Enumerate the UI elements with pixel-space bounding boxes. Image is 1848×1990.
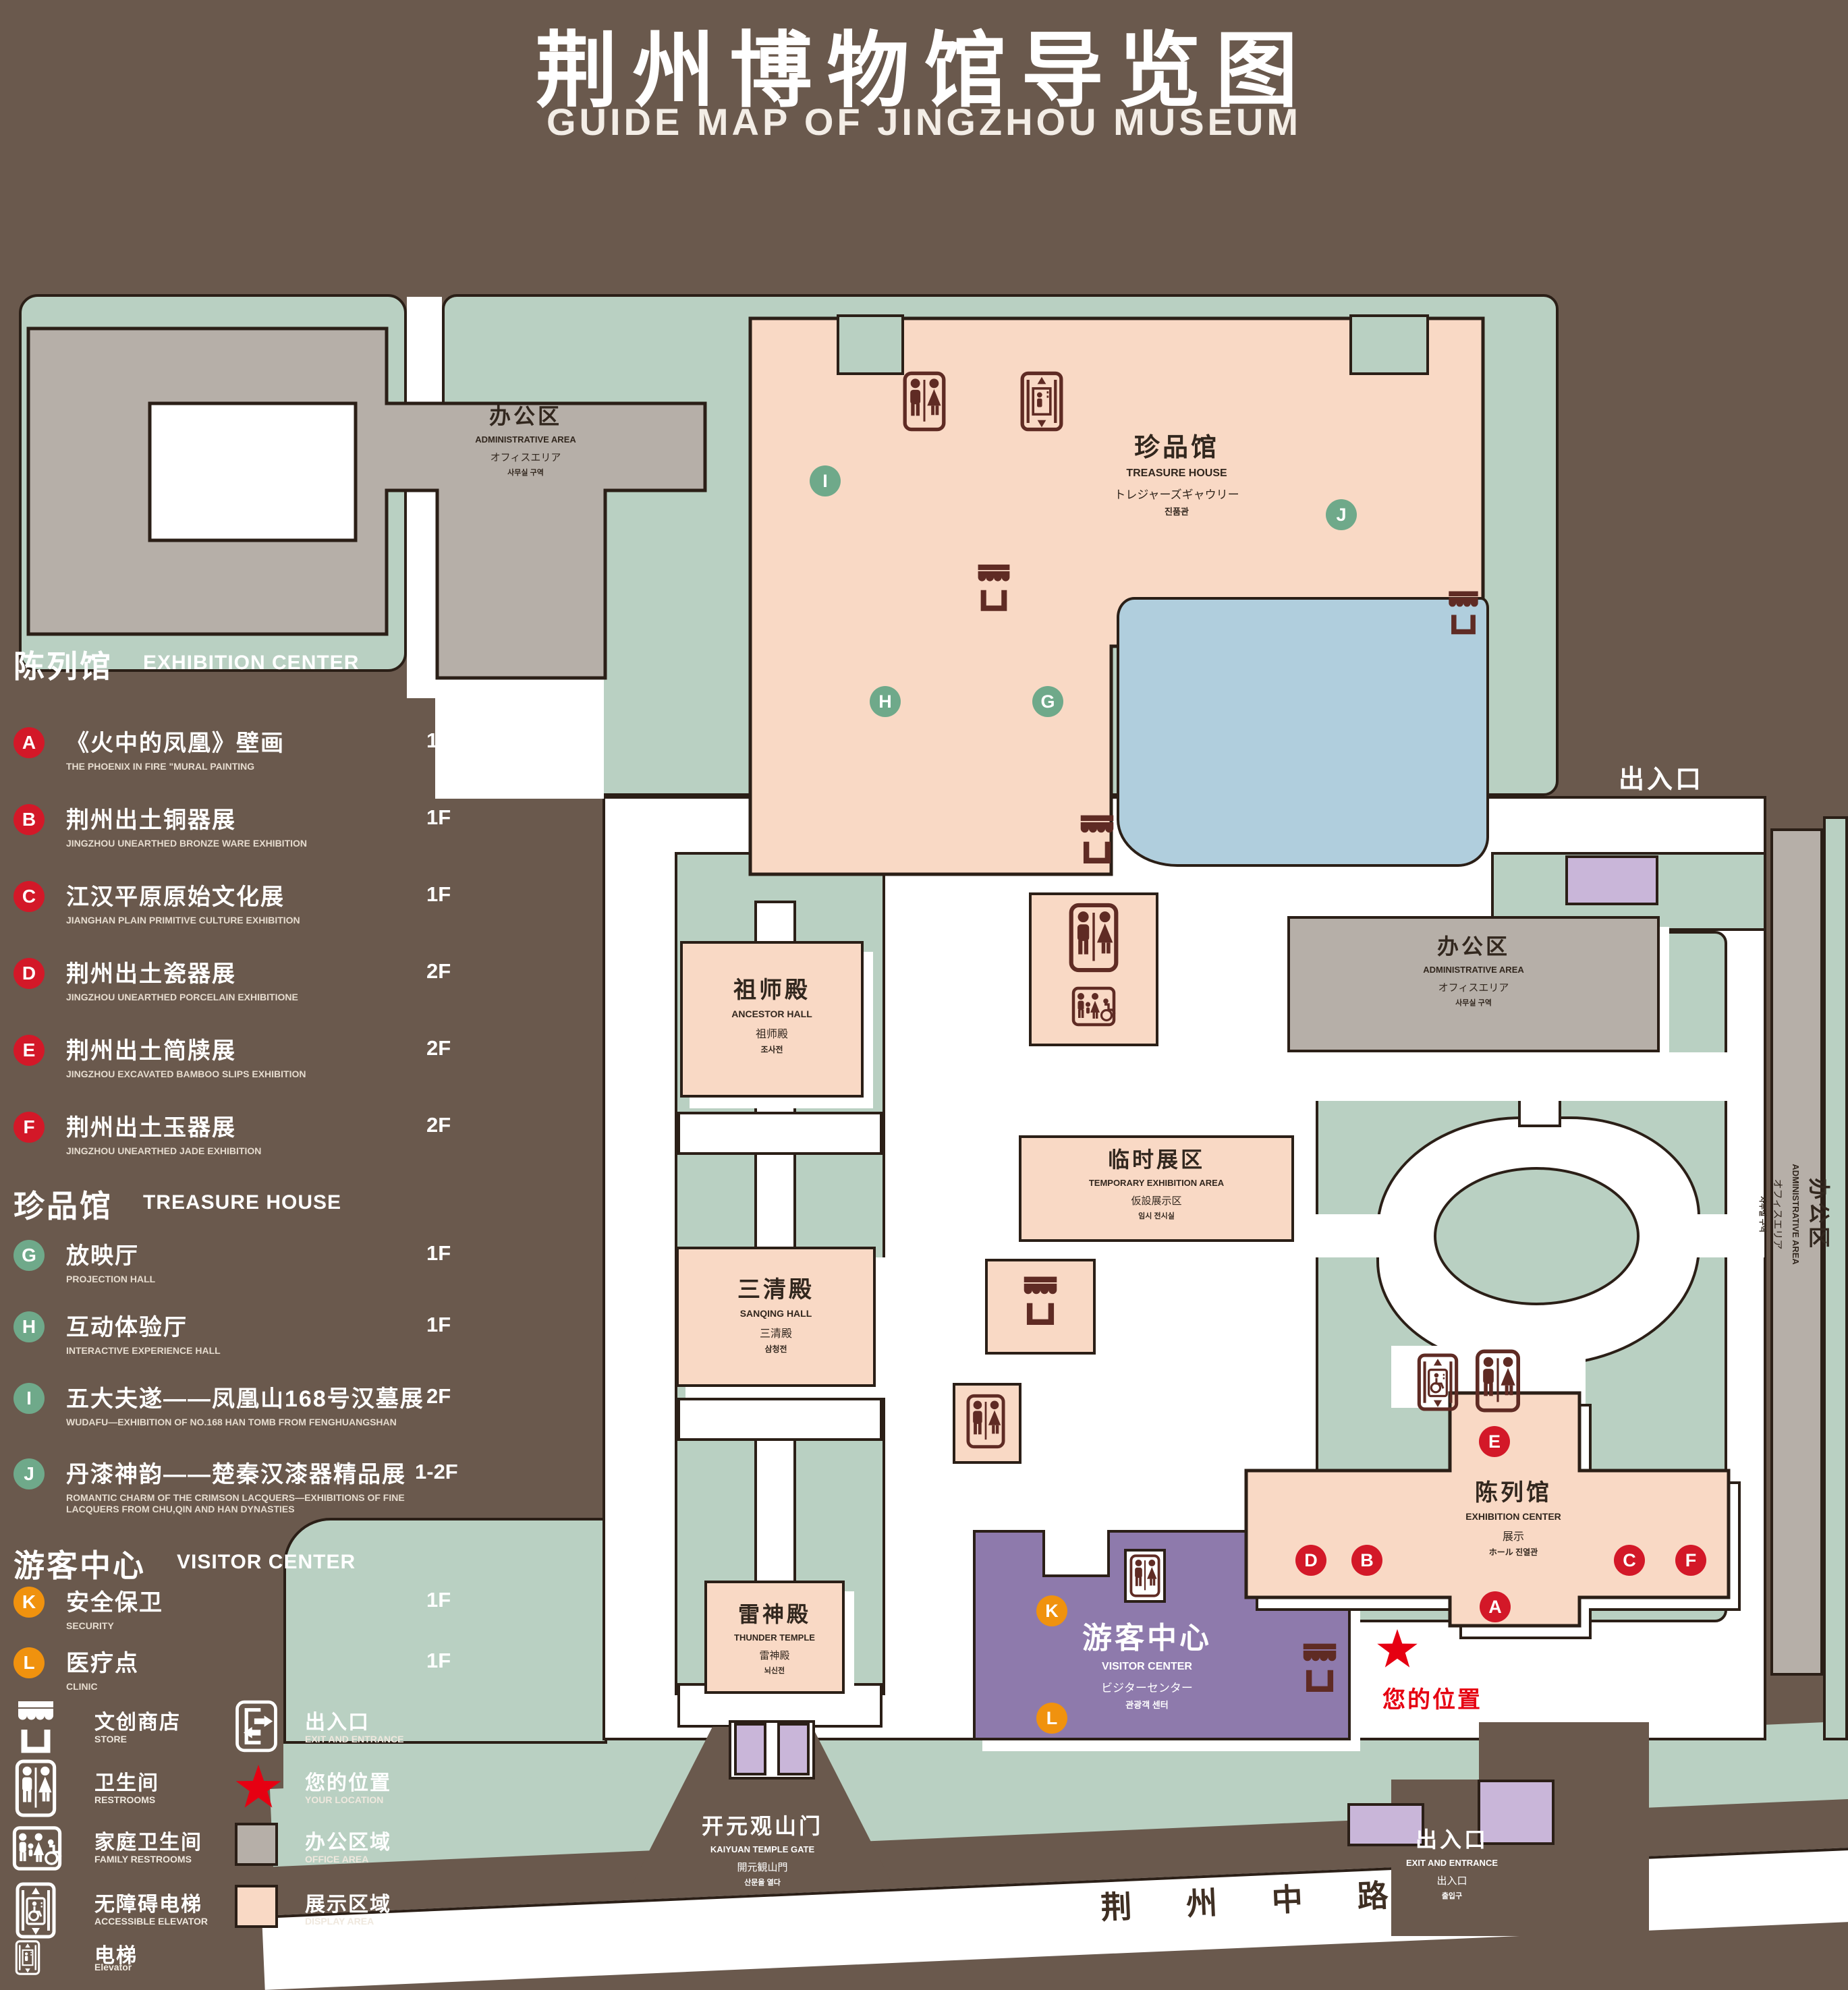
- restrooms-icon: [1475, 1349, 1521, 1413]
- temporary-area-label: 临时展区 TEMPORARY EXHIBITION AREA 仮設展示区 임시 …: [1089, 1143, 1224, 1221]
- section-treasure-house-en: TREASURE HOUSE: [143, 1191, 341, 1214]
- section-exhibition-center-zh: 陈列馆: [13, 642, 113, 687]
- garden-stub-right: [1690, 1214, 1764, 1257]
- legend-accessible-zh: 无障碍电梯: [94, 1887, 202, 1917]
- map-marker-E: E: [1479, 1426, 1510, 1457]
- treasure-house-label: 珍品馆 TREASURE HOUSE トレジャーズギャウリー 진품관: [1114, 426, 1239, 517]
- store-icon: [1021, 1276, 1059, 1326]
- map-marker-D: D: [1295, 1545, 1326, 1576]
- restrooms-icon: [1069, 903, 1119, 973]
- legend-display-en: DISPLAY AREA: [305, 1916, 374, 1927]
- family-restrooms-icon: [1071, 986, 1116, 1027]
- legend-accessible-en: ACCESSIBLE ELEVATOR: [94, 1916, 208, 1927]
- map-marker-J: J: [1326, 499, 1357, 530]
- admin-top-label: 办公区 ADMINISTRATIVE AREA オフィスエリア 사무실 구역: [475, 399, 576, 478]
- elevator-icon: [15, 1940, 40, 1975]
- lawn-right-edge: [1823, 816, 1848, 1740]
- path-temple-cross-1: [677, 1112, 883, 1155]
- legend-restrooms-en: RESTROOMS: [94, 1794, 155, 1805]
- store-icon: [15, 1701, 57, 1754]
- map-marker-H: H: [870, 686, 901, 717]
- page-subtitle: GUIDE MAP OF JINGZHOU MUSEUM: [0, 100, 1848, 144]
- badge-K: K: [13, 1587, 45, 1618]
- badge-C: C: [13, 881, 45, 912]
- legend-family-zh: 家庭卫生间: [94, 1825, 202, 1855]
- store-icon: [976, 564, 1012, 613]
- exit-icon: [1530, 803, 1569, 851]
- badge-G: G: [13, 1240, 45, 1271]
- sanqing-hall-label: 三清殿 SANQING HALL 三清殿 삼청전: [737, 1271, 814, 1355]
- map-marker-C: C: [1614, 1545, 1645, 1576]
- visitor-center-notch: [1042, 1530, 1110, 1577]
- legend-store-zh: 文创商店: [94, 1705, 181, 1735]
- legend-family-en: FAMILY RESTROOMS: [94, 1854, 192, 1865]
- map-marker-I: I: [810, 465, 841, 496]
- entrance-gate-top: [1565, 855, 1658, 905]
- your-location-text: 您的位置: [1382, 1681, 1482, 1714]
- ancestor-hall-label: 祖师殿 ANCESTOR HALL 祖师殿 조사전: [731, 971, 812, 1055]
- section-visitor-center-zh: 游客中心: [13, 1541, 146, 1586]
- kaiyuan-gate-right: [777, 1723, 810, 1775]
- legend-office-zh: 办公区域: [305, 1825, 391, 1855]
- badge-F: F: [13, 1112, 45, 1143]
- section-visitor-center-en: VISITOR CENTER: [177, 1551, 356, 1574]
- exit-icon: [235, 1700, 278, 1753]
- kaiyuan-gate-left: [734, 1723, 766, 1775]
- map-marker-B: B: [1351, 1545, 1382, 1576]
- garden-stub-left: [1287, 1214, 1385, 1257]
- path-below-admin-right: [1316, 1052, 1727, 1101]
- map-marker-L: L: [1036, 1703, 1067, 1734]
- thunder-temple-label: 雷神殿 THUNDER TEMPLE 雷神殿 뇌신전: [734, 1597, 815, 1676]
- restrooms-icon: [1129, 1554, 1160, 1597]
- legend-office-en: OFFICE AREA: [305, 1854, 368, 1865]
- accessible-elevator-icon: [15, 1882, 57, 1939]
- accessible-elevator-icon: [1417, 1353, 1459, 1411]
- badge-B: B: [13, 804, 45, 835]
- treasure-notch-1: [837, 314, 904, 375]
- restrooms-icon: [966, 1394, 1005, 1449]
- store-icon: [1078, 815, 1116, 865]
- admin-building-top-left: [27, 327, 708, 681]
- your-location-star: [235, 1765, 282, 1809]
- section-treasure-house-zh: 珍品馆: [13, 1182, 113, 1226]
- path-topleft-corner: [435, 676, 604, 799]
- legend-display-zh: 展示区域: [305, 1887, 391, 1917]
- legend-exit-en: EXIT AND ENTRANCE: [305, 1734, 404, 1744]
- family-restrooms-icon: [12, 1825, 62, 1871]
- kaiyuan-gate-label: 开元观山门 KAIYUAN TEMPLE GATE 開元観山門 산문을 열다: [702, 1809, 823, 1887]
- legend-exit-zh: 出入口: [305, 1705, 370, 1735]
- office-area-swatch: [235, 1823, 278, 1866]
- badge-A: A: [13, 727, 45, 758]
- badge-J: J: [13, 1458, 45, 1489]
- your-location-star: [1376, 1629, 1418, 1669]
- guide-map-poster: { "title": {"zh": "荆州博物馆导览图", "en": "GUI…: [0, 0, 1848, 1975]
- badge-L: L: [13, 1647, 45, 1678]
- legend-elevator-en: Elevator: [94, 1962, 132, 1972]
- badge-E: E: [13, 1035, 45, 1066]
- elevator-icon: [1020, 371, 1063, 432]
- admin-right-label: 办公区 ADMINISTRATIVE AREA オフィスエリア 사무실 구역: [1423, 930, 1524, 1008]
- exhibition-center-label: 陈列馆 EXHIBITION CENTER 展示 ホール 진열관: [1465, 1474, 1561, 1558]
- display-area-swatch: [235, 1885, 278, 1928]
- badge-D: D: [13, 958, 45, 989]
- map-marker-F: F: [1675, 1545, 1706, 1576]
- exit-top-label: 出入口 EXIT AND ENTRANCE 出入口 출입구: [1604, 758, 1717, 849]
- visitor-center-label: 游客中心 VISITOR CENTER ビジターセンター 관광객 센터: [1082, 1614, 1212, 1711]
- lake: [1117, 597, 1489, 867]
- section-exhibition-center-en: EXHIBITION CENTER: [143, 652, 359, 675]
- legend-location-en: YOUR LOCATION: [305, 1794, 383, 1805]
- admin-strip-label: 办公区 ADMINISTRATIVE AREA オフィスエリア 사무실 구역: [1758, 1164, 1836, 1265]
- store-icon: [1447, 591, 1480, 635]
- legend-restrooms-zh: 卫生间: [94, 1766, 159, 1796]
- treasure-notch-2: [1349, 314, 1429, 375]
- path-temple-cross-2: [677, 1398, 883, 1441]
- map-marker-K: K: [1036, 1595, 1067, 1626]
- map-marker-A: A: [1480, 1591, 1511, 1622]
- badge-I: I: [13, 1383, 45, 1414]
- restrooms-icon: [15, 1759, 57, 1817]
- legend-location-zh: 您的位置: [305, 1766, 391, 1796]
- store-icon: [1301, 1643, 1339, 1693]
- restrooms-icon: [903, 371, 946, 432]
- garden-loop-inner: [1434, 1167, 1640, 1305]
- map-marker-G: G: [1032, 686, 1063, 717]
- exit-bottom-label: 出入口 EXIT AND ENTRANCE 出入口 출입구: [1406, 1823, 1498, 1901]
- legend-store-en: STORE: [94, 1734, 127, 1744]
- badge-H: H: [13, 1311, 45, 1342]
